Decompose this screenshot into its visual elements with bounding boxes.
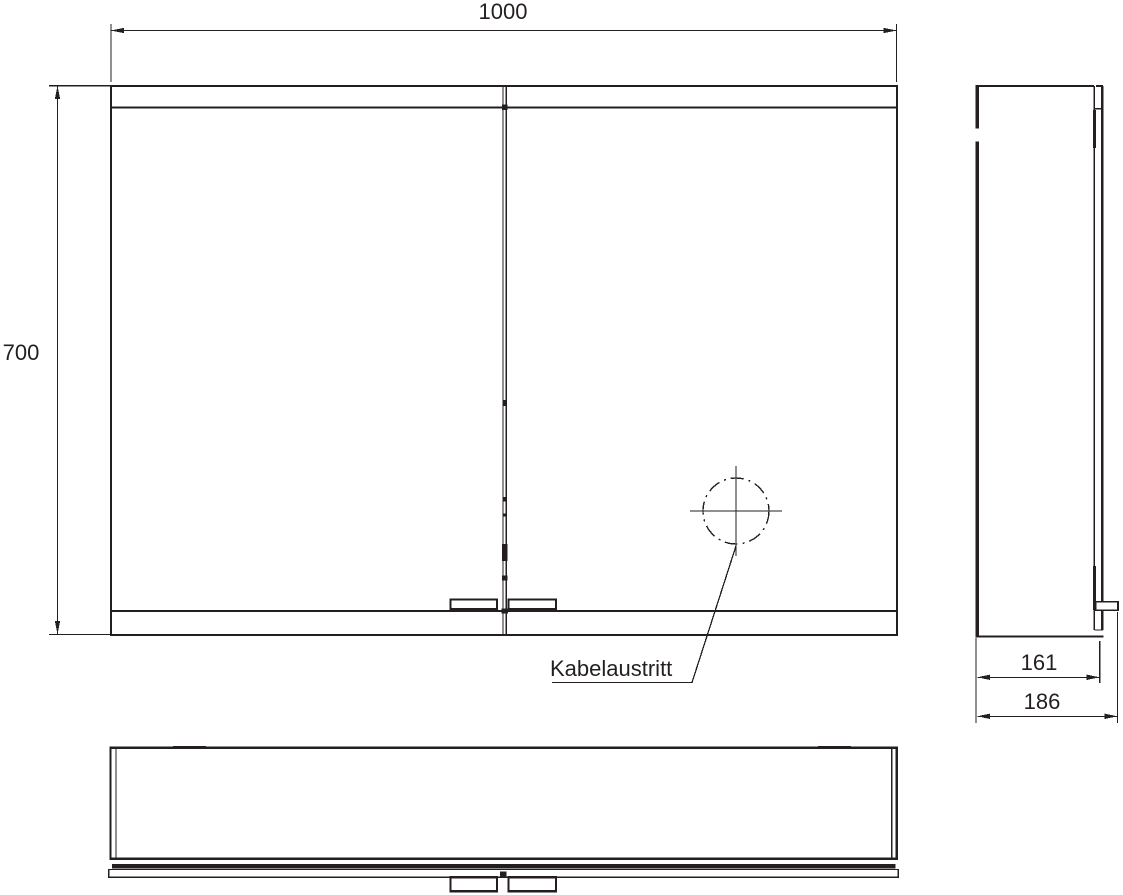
door-gap-mark [500,872,506,878]
cable-outlet-symbol [690,466,782,556]
door-split-mark [502,544,508,561]
arrowhead-left [977,714,990,719]
side-back-edge-mark [976,585,980,593]
arrowhead-right [884,28,897,33]
door-split-mark [502,400,507,406]
dimension-height-value: 700 [3,340,40,365]
door-split-mark [502,497,507,501]
dimension-width-value: 1000 [479,0,528,24]
bottom-handle-right [509,877,557,891]
door-split-mark [502,576,508,581]
side-view [975,85,1119,637]
side-back-edge-mark [976,568,980,577]
door-handle-left [451,600,498,610]
door-handle-right [509,600,557,610]
side-door-back-mark [1093,110,1096,148]
dimension-height: 700 [3,86,111,635]
drawing-svg: Kabelaustritt 1000 700 [0,0,1123,895]
arrowhead-left [111,28,124,33]
arrowhead-right [1087,675,1100,680]
door-split-mark [502,514,507,517]
mounting-rail-right [818,746,851,749]
bottom-outline [111,748,897,859]
arrowhead-right [1105,714,1118,719]
side-back-edge-gap [975,129,981,142]
bottom-handle-left [451,877,498,891]
side-handle-tab [1096,602,1119,610]
door-split-mark [502,609,508,614]
front-view: Kabelaustritt [111,86,897,683]
dimension-depth-overall-value: 186 [1024,689,1061,714]
bottom-view [109,746,899,891]
mounting-rail-left [173,746,206,749]
technical-drawing: Kabelaustritt 1000 700 [0,0,1123,895]
dimension-width: 1000 [111,0,897,82]
door-split-mark [502,105,508,111]
arrowhead-down [55,621,60,634]
arrowhead-up [55,86,60,99]
dimension-depth-body-value: 161 [1021,650,1058,675]
mirror-edge-band [112,864,896,869]
cable-outlet-label: Kabelaustritt [550,656,672,681]
arrowhead-left [977,675,990,680]
